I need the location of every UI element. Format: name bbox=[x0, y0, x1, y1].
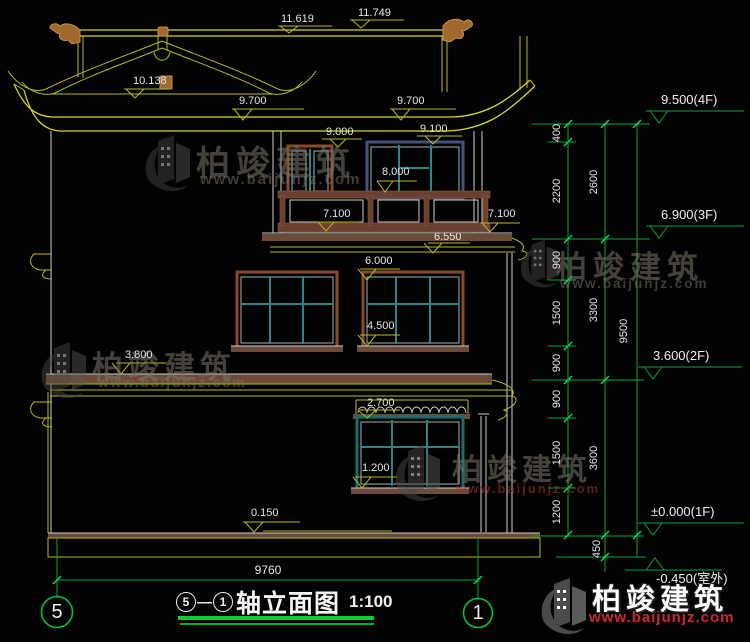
chain-dim: 2600 bbox=[588, 170, 600, 194]
floor-label-3f: 6.900(3F) bbox=[661, 208, 717, 222]
title-dash: — bbox=[197, 594, 212, 611]
elev-label-2700: 2.700 bbox=[367, 397, 395, 409]
floor-label-1f: ±0.000(1F) bbox=[651, 505, 715, 519]
elev-label-9700-right: 9.700 bbox=[397, 95, 425, 107]
chain-dim: 900 bbox=[551, 251, 563, 269]
elev-label-8000: 8.000 bbox=[382, 166, 410, 178]
floor-label-2f: 3.600(2F) bbox=[653, 349, 709, 363]
chain-dim: 3300 bbox=[588, 298, 600, 322]
elev-label-3800: 3.800 bbox=[125, 349, 153, 361]
elev-label-1200: 1.200 bbox=[362, 462, 390, 474]
footer-site: www.baijunjz.com bbox=[589, 609, 734, 626]
watermark-logo-icon bbox=[146, 135, 190, 191]
ridge-left-finial-icon bbox=[50, 24, 80, 44]
ridge-beam bbox=[50, 19, 527, 92]
elev-label-7100-right: 7.100 bbox=[488, 208, 516, 220]
chain-dim: 400 bbox=[551, 124, 563, 142]
watermark-site: www.baijunjz.com bbox=[98, 375, 247, 390]
elev-label-9700-left: 9.700 bbox=[239, 95, 267, 107]
wall-corbel-icon bbox=[31, 402, 52, 427]
base bbox=[48, 533, 540, 557]
title-axis-end-bubble: 1 bbox=[213, 592, 233, 612]
chain-dim-total-height: 9500 bbox=[618, 319, 630, 343]
watermark-site: www.baijunjz.com bbox=[200, 171, 361, 188]
wall-corbel-icon bbox=[31, 254, 52, 279]
eave-corbel-icon bbox=[492, 380, 516, 420]
chain-dim: 3600 bbox=[588, 446, 600, 470]
elev-label-10138: 10.138 bbox=[133, 75, 167, 87]
balcony-slab bbox=[262, 233, 527, 260]
chain-dim: 900 bbox=[551, 354, 563, 372]
title-axis-start-bubble: 5 bbox=[176, 592, 196, 612]
elev-label-7100-left: 7.100 bbox=[323, 208, 351, 220]
grid-bubble-left: 5 bbox=[47, 601, 67, 624]
cad-elevation-drawing: .y{stroke:#b9b91e;fill:none;stroke-width… bbox=[0, 0, 750, 642]
chain-dim: 1500 bbox=[551, 441, 563, 465]
window-3f-right bbox=[357, 272, 469, 352]
floor-label-4f: 9.500(4F) bbox=[661, 93, 717, 107]
elev-label-4500: 4.500 bbox=[367, 320, 395, 332]
elev-label-6550: 6.550 bbox=[434, 231, 462, 243]
drawing-title: 5 — 1 轴立面图 1:100 bbox=[176, 584, 393, 620]
chain-dim: 900 bbox=[551, 390, 563, 408]
title-name: 轴立面图 bbox=[236, 584, 340, 620]
ridge-right-finial-icon bbox=[443, 19, 472, 42]
elev-label-11619: 11.619 bbox=[281, 13, 314, 25]
title-scale: 1:100 bbox=[349, 592, 392, 612]
chain-dim: 1500 bbox=[551, 301, 563, 325]
window-3f-left bbox=[231, 272, 343, 352]
elev-label-0150: 0.150 bbox=[251, 507, 279, 519]
watermark-site: www.baijunjz.com bbox=[560, 276, 709, 291]
balcony-railing bbox=[278, 191, 490, 232]
ridge-center-finial-icon bbox=[158, 27, 168, 36]
elev-label-9000: 9.000 bbox=[326, 126, 354, 138]
chain-dim: 2200 bbox=[551, 179, 563, 203]
overall-width-dim: 9760 bbox=[238, 563, 298, 577]
chain-dim: 450 bbox=[591, 540, 603, 558]
elev-label-9100: 9.100 bbox=[420, 123, 448, 135]
title-underline-thin bbox=[180, 623, 374, 625]
chain-dim: 1200 bbox=[551, 500, 563, 524]
elev-label-11749: 11.749 bbox=[358, 7, 391, 19]
watermark-site: www.baijunjz.com bbox=[456, 481, 600, 496]
grid-bubble-right: 1 bbox=[468, 602, 488, 625]
footer-logo-icon bbox=[542, 578, 586, 634]
elev-label-6000: 6.000 bbox=[365, 255, 393, 267]
